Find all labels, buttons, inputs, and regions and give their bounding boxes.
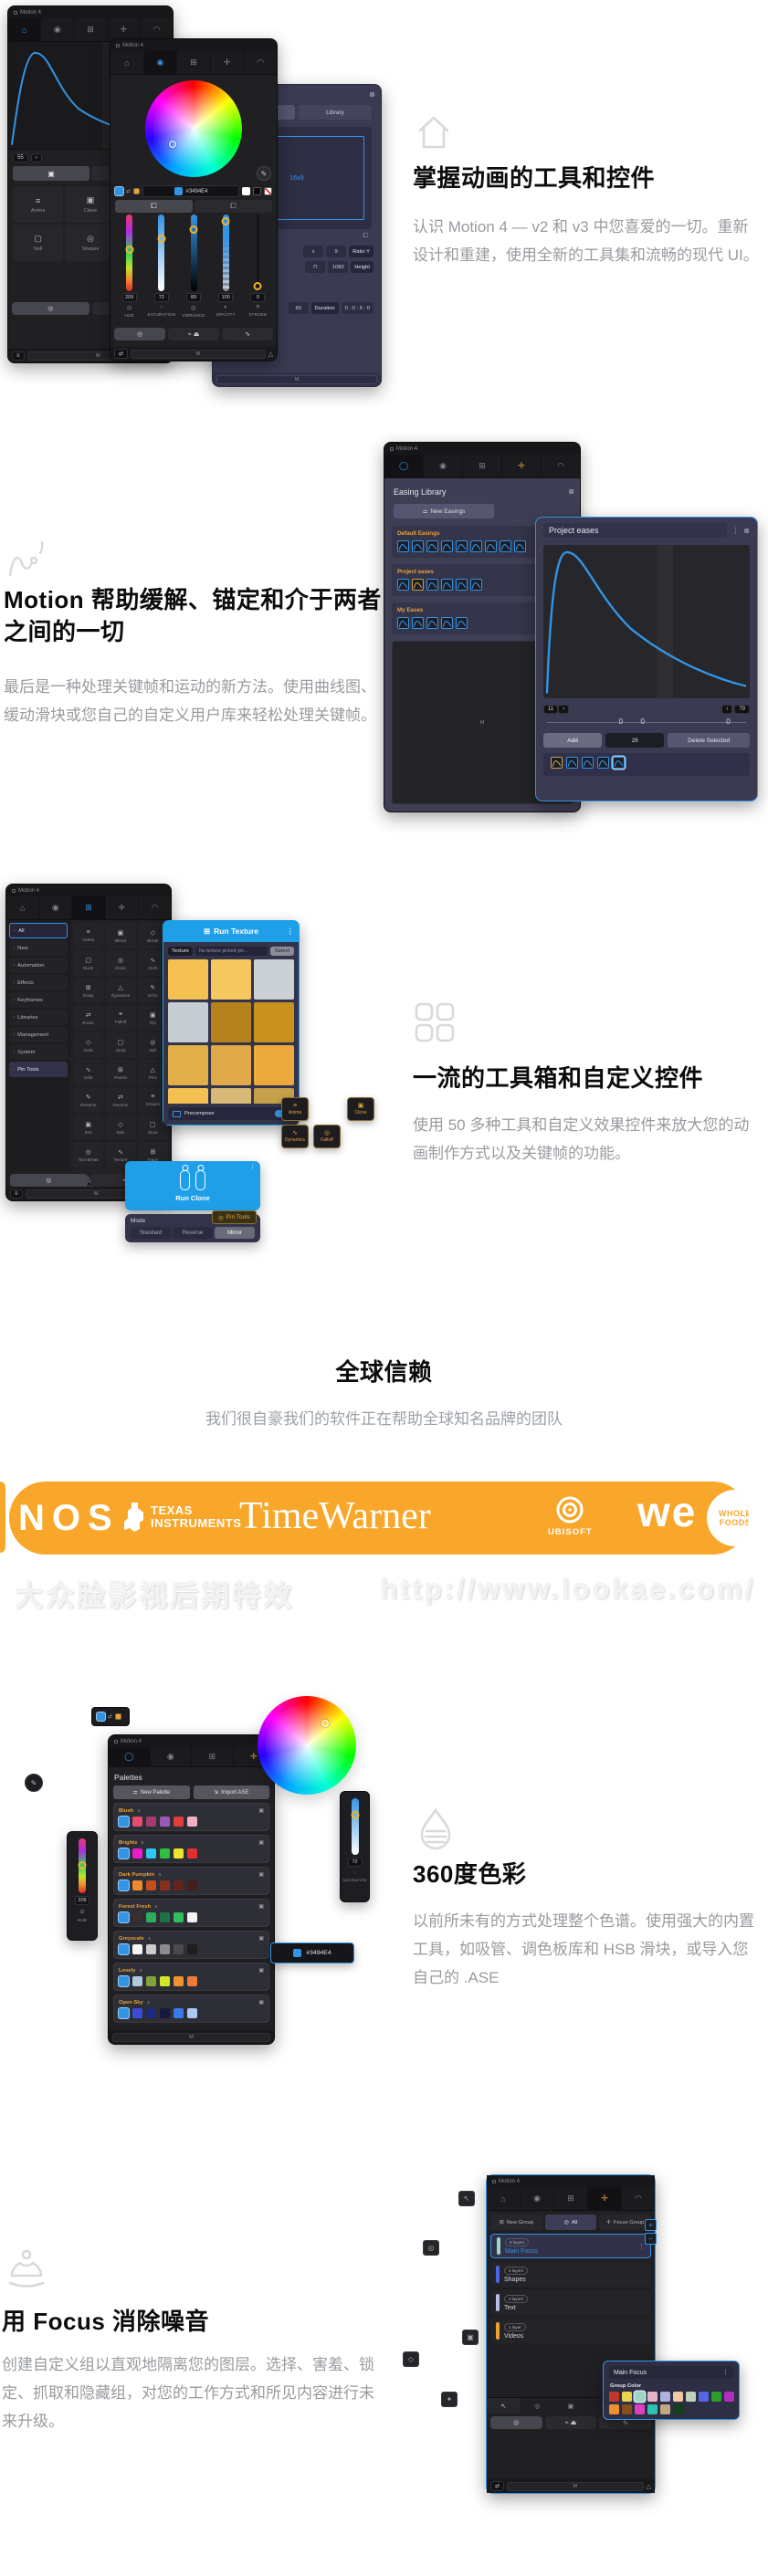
color-swatch[interactable] — [174, 1976, 184, 1986]
new-palette-button[interactable]: ⚌New Palette — [113, 1785, 190, 1799]
tab-color[interactable]: ◉ — [39, 896, 72, 919]
color-swatch[interactable] — [132, 1944, 142, 1954]
tab-tools[interactable]: ⊞ — [192, 1747, 234, 1766]
visibility-button[interactable]: ◎ — [114, 328, 165, 340]
color-swatch[interactable] — [724, 2392, 734, 2402]
color-swatch[interactable] — [168, 1002, 208, 1042]
sidebar-item[interactable]: ◦Automation — [9, 958, 68, 973]
texture-swatch-grid[interactable] — [168, 959, 294, 1104]
color-swatch[interactable] — [660, 2392, 670, 2402]
easing-thumbnail[interactable] — [441, 579, 453, 591]
saturation-knob[interactable] — [157, 235, 165, 243]
easing-thumbnail[interactable] — [441, 617, 453, 629]
ratio-value-chip[interactable]: 9 — [326, 246, 346, 257]
color-swatch[interactable] — [132, 2008, 142, 2018]
frame-out-value[interactable]: 79 — [734, 705, 750, 714]
tool-cell[interactable]: ◇Grab — [73, 1032, 103, 1058]
group-color-swatches[interactable] — [609, 2392, 735, 2414]
color-swatch[interactable] — [146, 1880, 156, 1890]
chip-falloff[interactable]: ◎Falloff — [313, 1125, 341, 1148]
color-swatch[interactable] — [187, 2008, 197, 2018]
palette-swatches[interactable] — [119, 2008, 264, 2018]
color-swatch[interactable] — [609, 2392, 619, 2402]
tab-focus[interactable]: ✛ — [502, 455, 542, 477]
tool-cell[interactable]: ▣Blend — [105, 923, 135, 948]
chip-anima[interactable]: ≡Anima — [281, 1097, 309, 1121]
tab-focus[interactable]: ✛ — [106, 896, 139, 919]
fps-value[interactable]: 60 — [289, 302, 309, 314]
tool-cell[interactable]: ⇄Excite — [73, 1005, 103, 1031]
visibility-button[interactable]: ◎ — [12, 302, 89, 315]
lock-icon[interactable]: ⊓ — [305, 261, 325, 273]
color-swatch[interactable] — [211, 1088, 251, 1104]
focus-group-row[interactable]: 5 layers Main Focus ⋮ — [490, 2234, 651, 2258]
color-swatch[interactable] — [211, 959, 251, 1000]
duration-value[interactable]: 0 : 0 : 5 : 0 — [342, 302, 373, 314]
easing-thumbnail[interactable] — [613, 757, 625, 769]
more-icon[interactable]: ⋮ — [722, 2369, 729, 2376]
height-value[interactable]: 1080 — [328, 261, 348, 273]
tab-tools[interactable]: ⊞ — [72, 896, 105, 919]
tab-tools[interactable]: ⊞ — [463, 455, 502, 477]
tool-cell[interactable]: ≡Falloff — [105, 1005, 135, 1031]
color-swatch[interactable] — [187, 1817, 197, 1827]
ease-graph[interactable] — [543, 545, 750, 698]
sidebar-item[interactable]: ◦Effects — [9, 975, 68, 990]
color-swatch[interactable] — [211, 1045, 251, 1085]
hue-knob[interactable] — [79, 1861, 87, 1869]
more-icon[interactable]: ⋮ — [287, 927, 295, 937]
hue-knob[interactable] — [125, 246, 133, 254]
color-swatch[interactable] — [187, 1848, 197, 1859]
visibility-button[interactable]: ◎ — [490, 2416, 542, 2429]
easing-thumbnail[interactable] — [456, 540, 468, 552]
tab-color[interactable]: ◉ — [521, 2187, 554, 2210]
easing-thumbnail[interactable] — [412, 540, 424, 552]
grab-eject-button[interactable]: ⌁ ⏏ — [168, 328, 219, 340]
stroke-slider[interactable]: 0 ≡ STROKE — [242, 215, 274, 318]
name-field[interactable]: M — [131, 350, 266, 359]
chip-lock[interactable]: ▣ — [462, 2330, 479, 2345]
remove-group-button[interactable]: − — [645, 2233, 657, 2245]
color-swatch[interactable] — [673, 2404, 683, 2414]
color-swatch[interactable] — [673, 2392, 683, 2402]
tab-tools[interactable]: ⊞ — [177, 51, 211, 74]
tool-cell[interactable]: ⇄Reverse — [105, 1087, 135, 1113]
color-swatch[interactable] — [146, 1848, 156, 1859]
easing-thumbnail[interactable] — [514, 540, 526, 552]
slider-handle[interactable]: 0 — [726, 717, 730, 726]
easing-thumbnail[interactable] — [582, 757, 594, 769]
tab-tools[interactable]: ⊞ — [554, 2187, 588, 2210]
easing-thumbnail[interactable] — [412, 579, 424, 591]
edit-icon[interactable]: ▣ — [258, 1967, 264, 1974]
menu-icon[interactable]: ≡ — [10, 1189, 23, 1199]
tool-cell[interactable]: ◎Text-Break — [73, 1142, 103, 1168]
no-color-swatch[interactable] — [264, 187, 272, 195]
collapse-icon[interactable]: ∧ — [147, 2000, 151, 2005]
tool-anima[interactable]: ≡Anima — [13, 186, 63, 223]
palette-swatches[interactable] — [119, 1912, 264, 1922]
black-swatch[interactable] — [253, 187, 261, 195]
frame-in-value[interactable]: 11 — [543, 705, 558, 714]
wheel-handle[interactable] — [169, 141, 176, 148]
new-easings-button[interactable]: ⚌New Easings — [394, 504, 494, 518]
palette-swatches[interactable] — [119, 1817, 264, 1827]
chip-clone[interactable]: ▣Clone — [347, 1097, 374, 1121]
tool-cell[interactable]: ◇Spin — [105, 1115, 135, 1140]
tab-feedback[interactable]: ◠ — [542, 455, 580, 477]
color-swatch[interactable] — [132, 1848, 142, 1859]
easing-thumbnail[interactable] — [500, 540, 511, 552]
tool-shapes[interactable]: ◎Shapes — [65, 225, 115, 261]
grab-eject-button[interactable]: ⌁ ⏏ — [545, 2416, 597, 2429]
vibrance-slider[interactable]: 89 ◎ VIBRANCE — [177, 215, 209, 318]
focus-group-row[interactable]: 1 layer Videos ⋮ — [490, 2319, 651, 2343]
lock-icon[interactable]: ▣ — [554, 2398, 588, 2414]
palette-swatches[interactable] — [119, 1976, 264, 1986]
color-swatch[interactable] — [146, 1912, 156, 1922]
color-swatch[interactable] — [132, 1817, 142, 1827]
view-toggle-left[interactable]: ▣ — [13, 166, 89, 181]
shuffle-icon[interactable]: ⇄ — [114, 349, 128, 359]
color-swatch[interactable] — [119, 2008, 129, 2018]
color-swatch[interactable] — [174, 2008, 184, 2018]
easing-thumbnail[interactable] — [470, 579, 482, 591]
sidebar-item[interactable]: ◦New — [9, 940, 68, 956]
color-swatch[interactable] — [168, 1045, 208, 1085]
color-swatch[interactable] — [119, 1912, 129, 1922]
color-swatch[interactable] — [119, 1880, 129, 1890]
edit-icon[interactable]: ▣ — [258, 1903, 264, 1910]
hue-value[interactable]: 209 — [75, 1896, 89, 1905]
color-swatch[interactable] — [146, 1817, 156, 1827]
ease-thumbnails[interactable] — [543, 753, 750, 776]
ease-range-slider[interactable]: 0 0 0 — [547, 717, 746, 728]
tab-color[interactable]: ◉ — [151, 1747, 193, 1766]
more-icon[interactable]: ⋮ — [249, 1164, 256, 1171]
close-icon[interactable]: ⊗ — [568, 487, 574, 496]
wheel-handle[interactable] — [321, 1720, 329, 1727]
run-clone-panel[interactable]: ⋮ Run Clone — [125, 1161, 260, 1210]
chevron-right-icon[interactable]: › — [558, 705, 569, 714]
palette-swatches[interactable] — [119, 1848, 264, 1859]
color-swatch[interactable] — [146, 1976, 156, 1986]
swap-colors-icon[interactable]: ⇄ — [108, 1713, 112, 1720]
vibrance-knob[interactable] — [190, 225, 198, 234]
hue-slider[interactable]: 209 ⊙ HUE — [113, 215, 145, 318]
tab-focus[interactable]: ✛ — [588, 2187, 622, 2210]
color-swatch[interactable] — [160, 1944, 170, 1954]
sidebar-item[interactable]: ◦Pin Tools — [9, 1062, 68, 1077]
chip-shield[interactable]: ◇ — [403, 2351, 419, 2367]
color-swatch[interactable] — [174, 1944, 184, 1954]
texture-chip[interactable]: Texture — [168, 947, 193, 956]
tab-tools[interactable]: ⊞ — [74, 18, 107, 41]
name-field[interactable]: M — [216, 375, 377, 384]
palette-group[interactable]: Blush ∧ ▣ — [113, 1803, 269, 1831]
select-button[interactable]: Select — [270, 947, 294, 956]
tool-cell[interactable]: ✎Rename — [73, 1087, 103, 1113]
focus-group-button[interactable]: ✛Focus Group — [599, 2215, 651, 2230]
color-swatch[interactable] — [174, 1880, 184, 1890]
expand-chip[interactable]: › — [31, 153, 42, 162]
tab-home[interactable]: ⌂ — [487, 2187, 521, 2210]
collapse-icon[interactable]: ∧ — [148, 1936, 152, 1942]
color-wheel[interactable] — [145, 80, 242, 177]
chip-dynamics[interactable]: ∿Dynamics — [281, 1125, 309, 1148]
close-icon[interactable]: ⊗ — [743, 527, 750, 535]
tool-clone[interactable]: ▣Clone — [65, 186, 115, 223]
cursor-icon[interactable]: ↖ — [487, 2398, 521, 2414]
fill-stroke-chip[interactable]: ⇄ — [91, 1707, 130, 1726]
tool-cell[interactable]: ▣Sort — [73, 1115, 103, 1140]
easing-thumbnail[interactable] — [441, 540, 453, 552]
window-titlebar: Motion 4 — [8, 6, 173, 18]
tab-home[interactable]: ⌂ — [110, 51, 144, 74]
edit-icon[interactable]: ▣ — [258, 1871, 264, 1878]
palette-group[interactable]: Open Sky ∧ ▣ — [113, 1995, 269, 2023]
focus-group-row[interactable]: 4 layers Shapes ⋮ — [490, 2262, 651, 2287]
collapse-icon[interactable]: ∧ — [137, 1808, 141, 1814]
color-swatch[interactable] — [647, 2404, 658, 2414]
shuffle-icon[interactable]: ⇄ — [490, 2481, 504, 2491]
color-swatch[interactable] — [699, 2392, 709, 2402]
tab-color[interactable]: ◉ — [424, 455, 463, 477]
copy-button[interactable]: ⧠ — [115, 200, 193, 213]
eyedropper-button[interactable]: ✎ — [25, 1774, 43, 1792]
tab-color[interactable]: ◉ — [144, 51, 178, 74]
swap-colors-icon[interactable]: ⇄ — [126, 188, 131, 194]
new-group-button[interactable]: ⊞New Group — [490, 2215, 542, 2230]
easing-thumbnail[interactable] — [397, 540, 409, 552]
tool-cell[interactable]: ∿Orbit — [73, 1060, 103, 1085]
saturation-knob[interactable] — [351, 1811, 359, 1819]
color-swatch[interactable] — [635, 2404, 645, 2414]
color-swatch[interactable] — [119, 1848, 129, 1859]
focus-group-row[interactable]: 2 layers Text ⋮ — [490, 2290, 651, 2315]
tab-color[interactable]: ◉ — [41, 18, 74, 41]
tab-home[interactable]: ⌂ — [8, 18, 41, 41]
mode-standard[interactable]: Standard — [131, 1227, 171, 1239]
sidebar-item[interactable]: ◦Keyframes — [9, 992, 68, 1008]
slider-handle[interactable]: 0 — [640, 717, 644, 726]
ubisoft-swirl-icon — [554, 1494, 585, 1525]
saturation-slider[interactable]: 72 ◌ SATURATION — [145, 215, 177, 318]
color-swatch[interactable] — [622, 2404, 632, 2414]
edit-icon[interactable]: ▣ — [258, 1839, 264, 1846]
easing-thumbnail[interactable] — [456, 579, 468, 591]
stroke-swatch[interactable] — [133, 188, 140, 194]
visibility-button[interactable]: ◎ — [10, 1174, 88, 1187]
link-x-chip[interactable]: x — [303, 246, 323, 257]
color-swatch[interactable] — [686, 2392, 696, 2402]
tool-null[interactable]: ▢Null — [13, 225, 63, 261]
color-swatch[interactable] — [174, 1912, 184, 1922]
home-icon: ◯ — [124, 1752, 133, 1762]
color-swatch[interactable] — [132, 1912, 142, 1922]
tool-cell[interactable]: ≡Anima — [73, 923, 103, 948]
sidebar-item[interactable]: ◦Management — [9, 1027, 68, 1042]
collapse-icon[interactable]: ∧ — [139, 1968, 142, 1974]
fill-swatch[interactable] — [115, 187, 123, 195]
color-swatch[interactable] — [119, 1817, 129, 1827]
sidebar-item[interactable]: ◦Libraries — [9, 1010, 68, 1025]
collapse-icon[interactable]: ∧ — [154, 1904, 158, 1910]
color-swatch[interactable] — [119, 1976, 129, 1986]
more-icon[interactable]: ⋮ — [731, 527, 739, 535]
chip-cursor[interactable]: ↖ — [458, 2191, 475, 2206]
palette-group[interactable]: Lovely ∧ ▣ — [113, 1963, 269, 1991]
edit-icon[interactable]: ▣ — [258, 1807, 264, 1814]
droplet-icon[interactable]: △ — [647, 2483, 651, 2490]
easing-thumbnail[interactable] — [551, 757, 563, 769]
palette-group[interactable]: Dark Pumpkin ∧ ▣ — [113, 1867, 269, 1895]
easing-thumbnail[interactable] — [566, 757, 578, 769]
tab-home[interactable]: ⌂ — [6, 896, 39, 919]
copy-icon[interactable]: ⧠ — [363, 233, 368, 240]
color-swatch[interactable] — [187, 1944, 197, 1954]
color-swatch[interactable] — [187, 1880, 197, 1890]
tab-home[interactable]: ◯ — [109, 1747, 151, 1766]
app-icon — [492, 2180, 496, 2183]
white-swatch[interactable] — [242, 187, 250, 195]
easing-thumbnail[interactable] — [485, 540, 497, 552]
sidebar-item[interactable]: ◦All — [9, 923, 68, 938]
color-swatch[interactable] — [160, 1880, 170, 1890]
curve-button[interactable]: ∿ — [222, 328, 273, 340]
menu-icon[interactable]: ≡ — [12, 351, 25, 361]
opacity-slider[interactable]: 100 ◐ OPACITY — [210, 215, 242, 318]
chevron-left-icon[interactable]: ‹ — [721, 705, 732, 714]
easing-thumbnail[interactable] — [456, 617, 468, 629]
color-wheel[interactable] — [258, 1696, 356, 1795]
easing-thumbnail[interactable] — [412, 617, 424, 629]
color-swatch[interactable] — [160, 1912, 170, 1922]
more-icon[interactable]: ⋮ — [638, 2243, 645, 2250]
sidebar-item[interactable]: ◦System — [9, 1044, 68, 1060]
chip-visibility[interactable]: ◎ — [423, 2240, 439, 2256]
palette-swatches[interactable] — [119, 1880, 264, 1890]
easing-thumbnail[interactable] — [426, 540, 438, 552]
color-swatch[interactable] — [160, 1817, 170, 1827]
color-swatch[interactable] — [609, 2404, 619, 2414]
edit-icon[interactable]: ▣ — [258, 1935, 264, 1942]
color-swatch[interactable] — [160, 2008, 170, 2018]
hex-value-chip[interactable]: #3494E4 — [270, 1942, 354, 1963]
color-swatch[interactable] — [211, 1002, 251, 1042]
delete-selected-button[interactable]: Delete Selected — [668, 733, 750, 748]
stroke-knob[interactable] — [254, 282, 262, 290]
chip-pin-tools[interactable]: ◎Pin Tools — [212, 1210, 257, 1224]
add-group-button[interactable]: + — [645, 2219, 657, 2231]
paste-button[interactable]: ⧠ — [195, 200, 272, 213]
color-swatch[interactable] — [160, 1976, 170, 1986]
color-swatch[interactable] — [168, 1088, 208, 1104]
stroke-swatch[interactable] — [115, 1713, 121, 1720]
easing-thumbnail[interactable] — [397, 617, 409, 629]
hex-value-chip[interactable]: #3494E4 — [142, 185, 239, 197]
collapse-icon[interactable]: ∧ — [141, 1840, 144, 1846]
tool-cell[interactable]: ◎Clone — [105, 950, 135, 976]
color-swatch[interactable] — [132, 1976, 142, 1986]
color-swatch[interactable] — [168, 959, 208, 1000]
eye-icon[interactable]: ◎ — [521, 2398, 554, 2414]
droplet-icon[interactable]: △ — [268, 351, 273, 358]
chip-sparkle[interactable]: ✦ — [441, 2392, 458, 2407]
color-swatch[interactable] — [160, 1848, 170, 1859]
color-swatch[interactable] — [254, 1045, 294, 1085]
all-button[interactable]: ◎All — [545, 2215, 597, 2230]
color-swatch[interactable] — [146, 1944, 156, 1954]
color-swatch[interactable] — [187, 1912, 197, 1922]
slider-handle[interactable]: 0 — [618, 717, 622, 726]
tab-home[interactable]: ◯ — [384, 455, 424, 477]
mode-reverse[interactable]: Reverse — [173, 1227, 213, 1239]
window-titlebar: Motion 4 — [487, 2175, 655, 2187]
tab-library[interactable]: Library — [299, 105, 372, 120]
tab-feedback[interactable]: ◠ — [622, 2187, 655, 2210]
easing-thumbnail[interactable] — [470, 540, 482, 552]
color-swatch[interactable] — [174, 1817, 184, 1827]
color-swatch[interactable] — [174, 1848, 184, 1859]
tool-cell[interactable]: ▢Burst — [73, 950, 103, 976]
eyedropper-button[interactable]: ✎ — [257, 166, 271, 181]
palette-group[interactable]: Forest Fresh ∧ ▣ — [113, 1899, 269, 1927]
count-field[interactable]: 28 — [605, 733, 664, 748]
palette-group[interactable]: Greyscale ∧ ▣ — [113, 1931, 269, 1959]
keyframe-value-chip[interactable]: 55 — [13, 153, 28, 162]
tool-cell[interactable]: ⊞Parent — [105, 1060, 135, 1085]
easing-thumbnail[interactable] — [397, 579, 409, 591]
color-swatch[interactable] — [146, 2008, 156, 2018]
mode-mirror[interactable]: Mirror — [215, 1227, 255, 1239]
add-button[interactable]: Add — [543, 733, 602, 748]
fill-swatch[interactable] — [97, 1712, 105, 1721]
color-swatch[interactable] — [119, 1944, 129, 1954]
tool-cell[interactable]: ⊞Delay — [73, 978, 103, 1003]
name-field[interactable]: M — [507, 2482, 644, 2491]
easing-thumbnail[interactable] — [426, 617, 438, 629]
color-swatch[interactable] — [254, 959, 294, 1000]
color-swatch[interactable] — [622, 2392, 632, 2402]
palette-group[interactable]: Brights ∧ ▣ — [113, 1835, 269, 1863]
import-ase-button[interactable]: ⇲Import ASE — [194, 1785, 270, 1799]
home-icon: ◯ — [399, 461, 408, 471]
color-swatch[interactable] — [660, 2404, 670, 2414]
collapse-icon[interactable]: ∧ — [158, 1872, 162, 1878]
tool-cell[interactable]: ▢Jump — [105, 1032, 135, 1058]
color-swatch[interactable] — [187, 1976, 197, 1986]
tab-feedback[interactable]: ◠ — [139, 896, 171, 919]
tab-focus[interactable]: ✛ — [211, 51, 245, 74]
close-icon[interactable]: ⊗ — [369, 90, 375, 99]
saturation-value[interactable]: 72 — [348, 1858, 363, 1867]
opacity-knob[interactable] — [222, 217, 230, 225]
tool-cell[interactable]: △Dynamics — [105, 978, 135, 1003]
tab-feedback[interactable]: ◠ — [244, 51, 277, 74]
edit-icon[interactable]: ▣ — [258, 1999, 264, 2005]
color-swatch[interactable] — [647, 2392, 658, 2402]
easing-thumbnail[interactable] — [426, 579, 438, 591]
color-swatch[interactable] — [132, 1880, 142, 1890]
color-swatch[interactable] — [635, 2392, 645, 2402]
easing-thumbnail[interactable] — [597, 757, 609, 769]
color-swatch[interactable] — [711, 2392, 721, 2402]
color-swatch[interactable] — [254, 1002, 294, 1042]
palette-swatches[interactable] — [119, 1944, 264, 1954]
name-field[interactable]: M — [112, 2033, 270, 2042]
